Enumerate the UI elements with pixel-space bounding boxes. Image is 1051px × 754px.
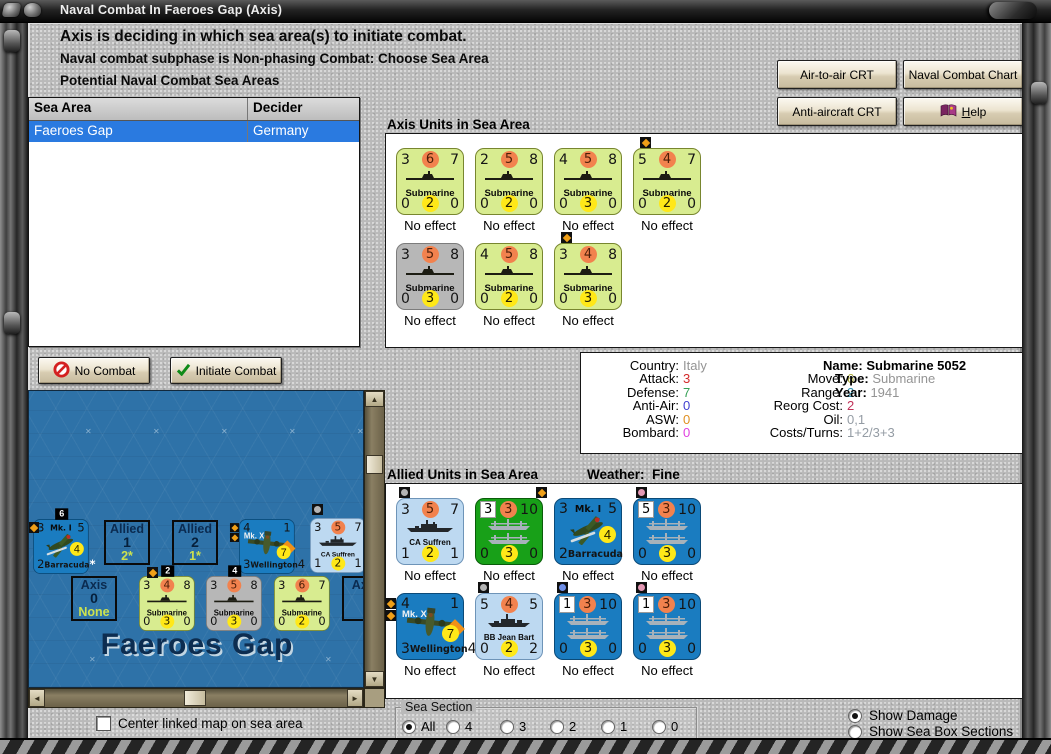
sea-section-radio-3[interactable]: 3: [500, 719, 526, 734]
scrollbar-corner: [364, 688, 385, 708]
button-label: Air-to-air CRT: [800, 68, 874, 82]
display-radio-show-damage[interactable]: Show Damage: [848, 708, 958, 723]
radio-label: Show Sea Box Sections: [869, 724, 1013, 739]
3-counter[interactable]: 5310030: [633, 498, 701, 565]
air-to-air-crt-button[interactable]: Air-to-air CRT: [777, 60, 897, 89]
orange-marker-icon: [230, 533, 239, 542]
radio-icon[interactable]: [601, 720, 615, 734]
damage-status: No effect: [396, 218, 464, 233]
stack-count-badge: 2: [161, 565, 174, 576]
sea-box-axis[interactable]: Axis: [342, 576, 364, 621]
unit-slot: 357CA Suffren121No effect: [396, 498, 464, 565]
help-book-icon: [940, 103, 957, 120]
wellington-counter[interactable]: 41Mk. X73Wellington4: [239, 519, 295, 574]
orange-marker-icon: [28, 522, 39, 533]
orange-marker-icon: [147, 567, 158, 578]
sea-box-axis[interactable]: Axis0None: [71, 576, 117, 621]
orange-marker-icon: [536, 487, 547, 498]
damage-status: No effect: [475, 313, 543, 328]
radio-label: 3: [519, 719, 526, 734]
pink-marker-icon: [636, 582, 647, 593]
radio-label: Show Damage: [869, 708, 958, 723]
hex-port-mark: ✕: [221, 427, 228, 436]
pink-marker-icon: [636, 487, 647, 498]
unit-slot: 1310030No effect: [633, 593, 701, 660]
damage-status: No effect: [554, 313, 622, 328]
orange-marker-icon: [385, 598, 396, 609]
submarine-icon: [405, 170, 455, 188]
unit-slot: 358Submarine030No effect: [396, 243, 464, 310]
anti-aircraft-crt-button[interactable]: Anti-aircraft CRT: [777, 97, 897, 126]
hex-port-mark: ✕: [153, 427, 160, 436]
sea-section-group: Sea Section All43210: [395, 707, 697, 741]
year-label: Year:: [835, 385, 867, 400]
submarine-icon: [484, 265, 534, 283]
map-sea-area-name: Faeroes Gap: [29, 628, 364, 662]
damage-status: No effect: [396, 568, 464, 583]
stat-value: 0: [683, 425, 690, 440]
submarine-counter[interactable]: 348Submarine030: [554, 243, 622, 310]
dialog-content: Axis is deciding in which sea area(s) to…: [28, 22, 1022, 740]
sea-section-radio-all[interactable]: All: [402, 719, 435, 734]
ca-suffren-counter[interactable]: 357CA Suffren121: [310, 518, 364, 573]
submarine-icon: [484, 170, 534, 188]
damage-status: No effect: [396, 663, 464, 678]
axis-units-panel: 367Submarine020No effect258Submarine020N…: [385, 133, 1023, 348]
right-frame-rail: [1022, 22, 1051, 740]
table-header: Sea Area Decider: [29, 98, 359, 121]
cruiser-icon: [405, 519, 455, 538]
bb-jean-bart-counter[interactable]: 545BB Jean Bart022: [475, 593, 543, 660]
cruiser-icon: [317, 535, 358, 551]
rail-knob-icon: [4, 312, 20, 334]
subphase-line: Naval combat subphase is Non-phasing Com…: [60, 51, 489, 66]
system-menu-icon[interactable]: [2, 3, 22, 17]
scroll-up-icon[interactable]: ▲: [365, 391, 384, 407]
damage-status: No effect: [554, 568, 622, 583]
orange-marker-icon: [385, 610, 396, 621]
wellington-counter[interactable]: 41Mk. X73Wellington4: [396, 593, 464, 660]
damage-status: No effect: [633, 663, 701, 678]
submarine-icon: [146, 594, 187, 609]
left-frame-rail: [0, 22, 28, 740]
window-icon: [24, 3, 41, 17]
titlebar-ornament-icon: [989, 2, 1037, 19]
rail-knob-icon: [4, 30, 20, 52]
unit-slot: 458Submarine030No effect: [554, 148, 622, 215]
damage-status: No effect: [633, 568, 701, 583]
hex-port-mark: ✕: [289, 427, 296, 436]
damage-status: No effect: [475, 663, 543, 678]
barracuda-counter[interactable]: 3Mk. I542Barracuda*6: [33, 519, 89, 574]
sea-area-map: Faeroes Gap ✕✕✕✕✕✕✕✕✕Allied12*Allied21*A…: [28, 390, 385, 710]
submarine-icon: [563, 265, 613, 283]
no-combat-icon: [53, 361, 70, 381]
window-title: Naval Combat In Faeroes Gap (Axis): [60, 3, 282, 17]
damage-status: No effect: [396, 313, 464, 328]
hex-port-mark: ✕: [357, 427, 364, 436]
damage-status: No effect: [475, 218, 543, 233]
unit-slot: 1310030No effect: [554, 593, 622, 660]
orange-marker-icon: [640, 137, 651, 148]
gray-marker-icon: [312, 504, 323, 515]
radio-icon[interactable]: [446, 720, 460, 734]
radio-icon[interactable]: [848, 709, 862, 723]
submarine-counter[interactable]: 367Submarine020: [396, 148, 464, 215]
submarine-icon: [213, 594, 254, 609]
hscroll-thumb[interactable]: [184, 690, 206, 706]
unit-slot: 41Mk. X73Wellington4No effect: [396, 593, 464, 660]
table-row[interactable]: Faeroes Gap Germany: [29, 121, 359, 142]
unit-slot: 367Submarine020No effect: [396, 148, 464, 215]
battleship-icon: [486, 614, 532, 633]
map-view[interactable]: Faeroes Gap ✕✕✕✕✕✕✕✕✕Allied12*Allied21*A…: [28, 390, 364, 688]
submarine-counter[interactable]: 458Submarine030: [554, 148, 622, 215]
submarine-icon: [405, 265, 455, 283]
display-radio-show-sea-box-sections[interactable]: Show Sea Box Sections: [848, 724, 1013, 739]
scroll-down-icon[interactable]: ▼: [365, 671, 384, 687]
unit-slot: 458Submarine020No effect: [475, 243, 543, 310]
submarine-counter[interactable]: 358Submarine0304: [206, 576, 262, 631]
app-window: { "window": {"title": "Naval Combat In F…: [0, 0, 1051, 754]
table-caption: Potential Naval Combat Sea Areas: [60, 73, 279, 88]
sea-section-radio-1[interactable]: 1: [601, 719, 627, 734]
radio-label: 4: [465, 719, 472, 734]
decider-cell[interactable]: Germany: [248, 121, 359, 142]
3-counter[interactable]: 3310030: [475, 498, 543, 565]
scroll-left-icon[interactable]: ◄: [29, 689, 45, 707]
submarine-icon: [281, 594, 322, 609]
orange-marker-icon: [230, 523, 239, 532]
naval-combat-chart-button[interactable]: Naval Combat Chart: [903, 60, 1023, 89]
checkbox-label: Center linked map on sea area: [118, 716, 303, 731]
axis-units-title: Axis Units in Sea Area: [387, 117, 530, 132]
submarine-counter[interactable]: 547Submarine020: [633, 148, 701, 215]
damage-status: No effect: [633, 218, 701, 233]
damage-status: No effect: [554, 218, 622, 233]
submarine-counter[interactable]: 348Submarine0302: [139, 576, 195, 631]
stack-count-badge: 6: [55, 508, 68, 519]
submarine-counter[interactable]: 258Submarine020: [475, 148, 543, 215]
button-label: Help: [962, 105, 987, 119]
radio-icon[interactable]: [652, 720, 666, 734]
map-vertical-scrollbar[interactable]: ▲ ▼: [364, 390, 385, 688]
stack-count-badge: 4: [228, 565, 241, 576]
unit-stats-left: Attack:3Defense:7Anti-Air:0ASW:0Bombard:…: [583, 371, 690, 438]
button-label: Initiate Combat: [196, 364, 277, 378]
help-button[interactable]: Help: [903, 97, 1023, 126]
unit-slot: 258Submarine020No effect: [475, 148, 543, 215]
center-map-checkbox[interactable]: Center linked map on sea area: [90, 714, 311, 734]
weather-label: Weather:: [587, 467, 645, 482]
gray-marker-icon: [478, 582, 489, 593]
submarine-counter[interactable]: 358Submarine030: [396, 243, 464, 310]
map-horizontal-scrollbar[interactable]: ◄ ►: [28, 688, 364, 708]
radio-label: 0: [671, 719, 678, 734]
phase-headline: Axis is deciding in which sea area(s) to…: [60, 28, 467, 46]
radio-label: 2: [569, 719, 576, 734]
col-decider[interactable]: Decider: [248, 98, 359, 120]
radio-icon[interactable]: [550, 720, 564, 734]
unit-info-panel: Country:Italy Attack:3Defense:7Anti-Air:…: [580, 352, 1023, 454]
ca-suffren-counter[interactable]: 357CA Suffren121: [396, 498, 464, 565]
sea-box-allied[interactable]: Allied21*: [172, 520, 218, 565]
radio-label: All: [421, 719, 435, 734]
sea-section-radio-2[interactable]: 2: [550, 719, 576, 734]
hex-port-mark: ✕: [85, 427, 92, 436]
button-label: No Combat: [75, 364, 136, 378]
unit-slot: 547Submarine020No effect: [633, 148, 701, 215]
vscroll-thumb[interactable]: [366, 455, 383, 474]
check-icon: [176, 363, 191, 379]
allied-units-title: Allied Units in Sea Area: [387, 467, 538, 482]
unit-slot: 3Mk. I542Barracuda*No effect: [554, 498, 622, 565]
sea-area-table: Sea Area Decider Faeroes Gap Germany: [28, 97, 360, 347]
barracuda-counter[interactable]: 3Mk. I542Barracuda*: [554, 498, 622, 565]
unit-year: 1941: [870, 385, 899, 400]
titlebar[interactable]: Naval Combat In Faeroes Gap (Axis): [0, 0, 1051, 23]
blue-marker-icon: [557, 582, 568, 593]
submarine-counter[interactable]: 367Submarine020: [274, 576, 330, 631]
weather-line: Weather: Fine: [587, 467, 680, 482]
button-label: Naval Combat Chart: [909, 68, 1018, 82]
weather-value: Fine: [652, 467, 680, 482]
radio-icon[interactable]: [848, 725, 862, 739]
sea-area-cell[interactable]: Faeroes Gap: [29, 121, 248, 142]
gray-marker-icon: [399, 487, 410, 498]
radio-icon[interactable]: [402, 720, 416, 734]
sea-section-radio-4[interactable]: 4: [446, 719, 472, 734]
submarine-icon: [642, 170, 692, 188]
rail-knob-icon: [1031, 82, 1047, 104]
bottom-frame-bar: [0, 738, 1051, 754]
damage-status: No effect: [475, 568, 543, 583]
no-combat-button[interactable]: No Combat: [38, 357, 150, 384]
unit-slot: 3310030No effect: [475, 498, 543, 565]
sea-section-legend: Sea Section: [401, 700, 476, 714]
allied-units-panel: 357CA Suffren121No effect3310030No effec…: [385, 483, 1023, 699]
sea-section-radio-0[interactable]: 0: [652, 719, 678, 734]
3-counter[interactable]: 1310030: [633, 593, 701, 660]
unit-slot: 5310030No effect: [633, 498, 701, 565]
stat-value: 1+2/3+3: [847, 425, 895, 440]
initiate-combat-button[interactable]: Initiate Combat: [170, 357, 282, 384]
unit-slot: 545BB Jean Bart022No effect: [475, 593, 543, 660]
checkbox-icon[interactable]: [96, 716, 111, 731]
radio-icon[interactable]: [500, 720, 514, 734]
submarine-counter[interactable]: 458Submarine020: [475, 243, 543, 310]
unit-slot: 348Submarine030No effect: [554, 243, 622, 310]
sea-box-allied[interactable]: Allied12*: [104, 520, 150, 565]
col-sea-area[interactable]: Sea Area: [29, 98, 248, 120]
damage-status: No effect: [554, 663, 622, 678]
radio-label: 1: [620, 719, 627, 734]
orange-marker-icon: [561, 232, 572, 243]
button-label: Anti-aircraft CRT: [792, 105, 881, 119]
submarine-icon: [563, 170, 613, 188]
3-counter[interactable]: 1310030: [554, 593, 622, 660]
scroll-right-icon[interactable]: ►: [347, 689, 363, 707]
